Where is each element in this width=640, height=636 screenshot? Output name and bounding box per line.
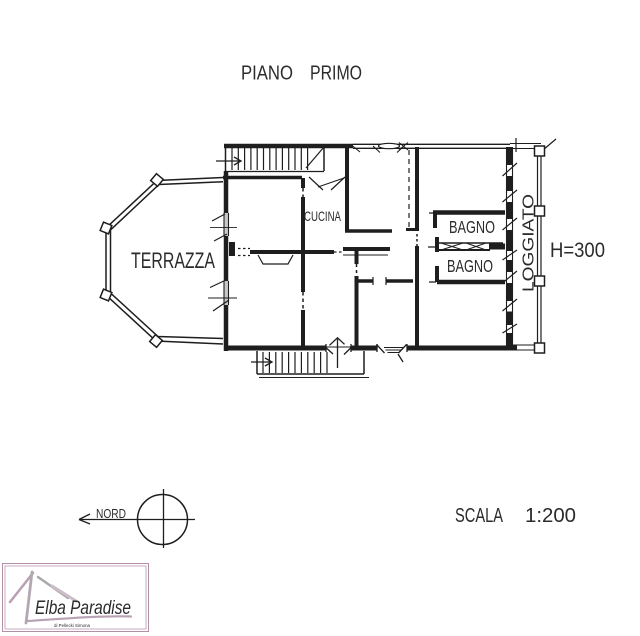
svg-text:LOGGIATO: LOGGIATO <box>521 194 538 292</box>
svg-text:CUCINA: CUCINA <box>304 208 341 224</box>
svg-text:1:200: 1:200 <box>525 505 576 527</box>
svg-text:PRIMO: PRIMO <box>310 62 362 85</box>
svg-text:NORD: NORD <box>96 506 126 521</box>
svg-text:SCALA: SCALA <box>455 505 503 527</box>
svg-text:H=300: H=300 <box>550 239 605 262</box>
svg-text:TERRAZZA: TERRAZZA <box>131 248 215 273</box>
svg-text:di Pellecki Simona: di Pellecki Simona <box>54 623 90 628</box>
svg-text:PIANO: PIANO <box>241 62 293 85</box>
svg-text:BAGNO: BAGNO <box>449 217 495 237</box>
svg-text:BAGNO: BAGNO <box>447 256 493 276</box>
